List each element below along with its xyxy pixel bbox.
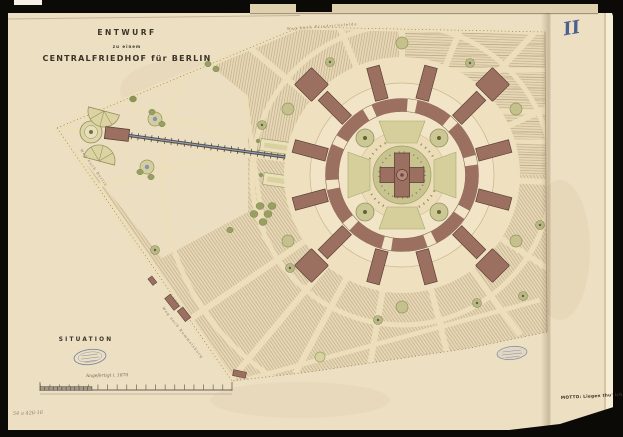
bright-sheet-edge	[606, 13, 613, 430]
paper-stain	[210, 382, 390, 418]
handwritten-note: Angefertigt i. 1870	[85, 373, 129, 379]
title-line3: CENTRALFRIEDHOF für BERLIN	[43, 54, 212, 63]
title-line1: ENTWURF	[97, 28, 156, 37]
paper-sliver	[14, 0, 42, 5]
sheet-edge-gap	[604, 13, 606, 430]
entrance-building	[104, 127, 129, 142]
title-line2: zu einem	[113, 44, 141, 49]
scanned-plate: ENTWURF zu einem CENTRALFRIEDHOF für BER…	[0, 0, 623, 437]
binding-tab	[296, 0, 332, 12]
central-complex	[282, 37, 522, 313]
shelfmark: 54 a 426-16	[13, 410, 44, 417]
plate-drawing: ENTWURF zu einem CENTRALFRIEDHOF für BER…	[0, 0, 623, 437]
fold-shadow	[541, 13, 551, 430]
black-left	[0, 0, 8, 437]
section-label: SITUATION	[59, 337, 114, 343]
